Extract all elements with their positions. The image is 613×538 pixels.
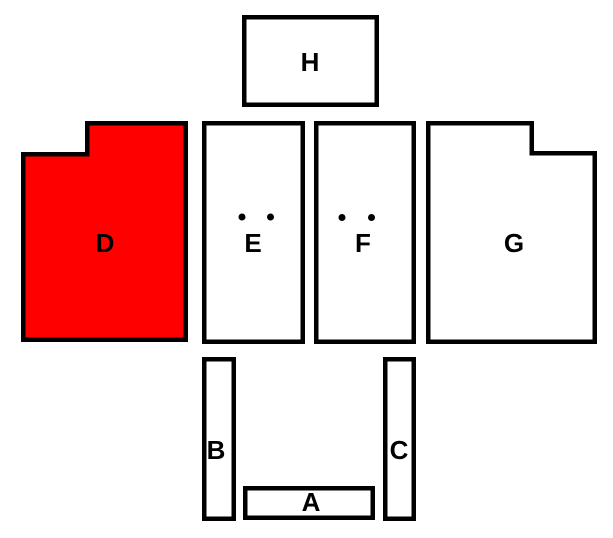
- shape-F-label: F: [355, 228, 371, 258]
- shape-H-group: H: [244, 17, 377, 105]
- shape-G-group: G: [428, 123, 595, 342]
- dot-mark: [267, 214, 274, 221]
- shape-C-group: C: [385, 359, 414, 519]
- shape-G-label: G: [504, 228, 524, 258]
- dot-mark: [339, 214, 346, 221]
- shape-D-group: D: [23, 123, 186, 340]
- diagram-svg: H D E F G B: [0, 0, 613, 538]
- shape-B-label: B: [207, 435, 226, 465]
- shape-D-label: D: [96, 228, 115, 258]
- shape-H-label: H: [301, 47, 320, 77]
- floor-diagram: H D E F G B: [0, 0, 613, 538]
- dot-mark: [239, 214, 246, 221]
- shape-E-label: E: [244, 228, 261, 258]
- shape-E-group: E: [204, 123, 303, 342]
- shape-A-group: A: [245, 487, 373, 518]
- shape-B-group: B: [204, 359, 234, 519]
- shape-C-label: C: [390, 435, 409, 465]
- shape-F-group: F: [316, 123, 414, 342]
- shape-A-label: A: [302, 487, 321, 517]
- dot-mark: [368, 214, 375, 221]
